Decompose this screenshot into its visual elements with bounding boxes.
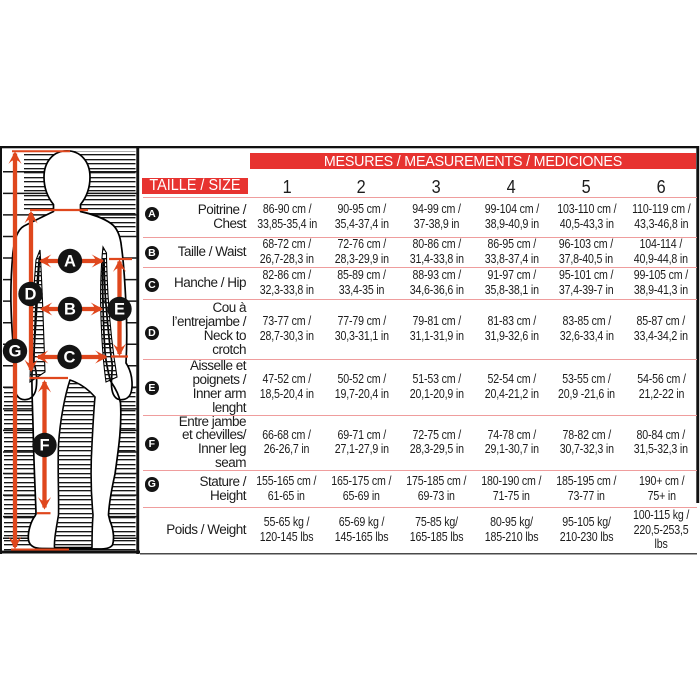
svg-text:F: F [39,437,49,455]
svg-text:G: G [9,343,22,361]
svg-text:E: E [114,301,125,319]
svg-text:D: D [25,286,37,304]
svg-text:A: A [64,253,76,271]
svg-text:C: C [64,349,76,367]
svg-text:B: B [64,301,76,319]
